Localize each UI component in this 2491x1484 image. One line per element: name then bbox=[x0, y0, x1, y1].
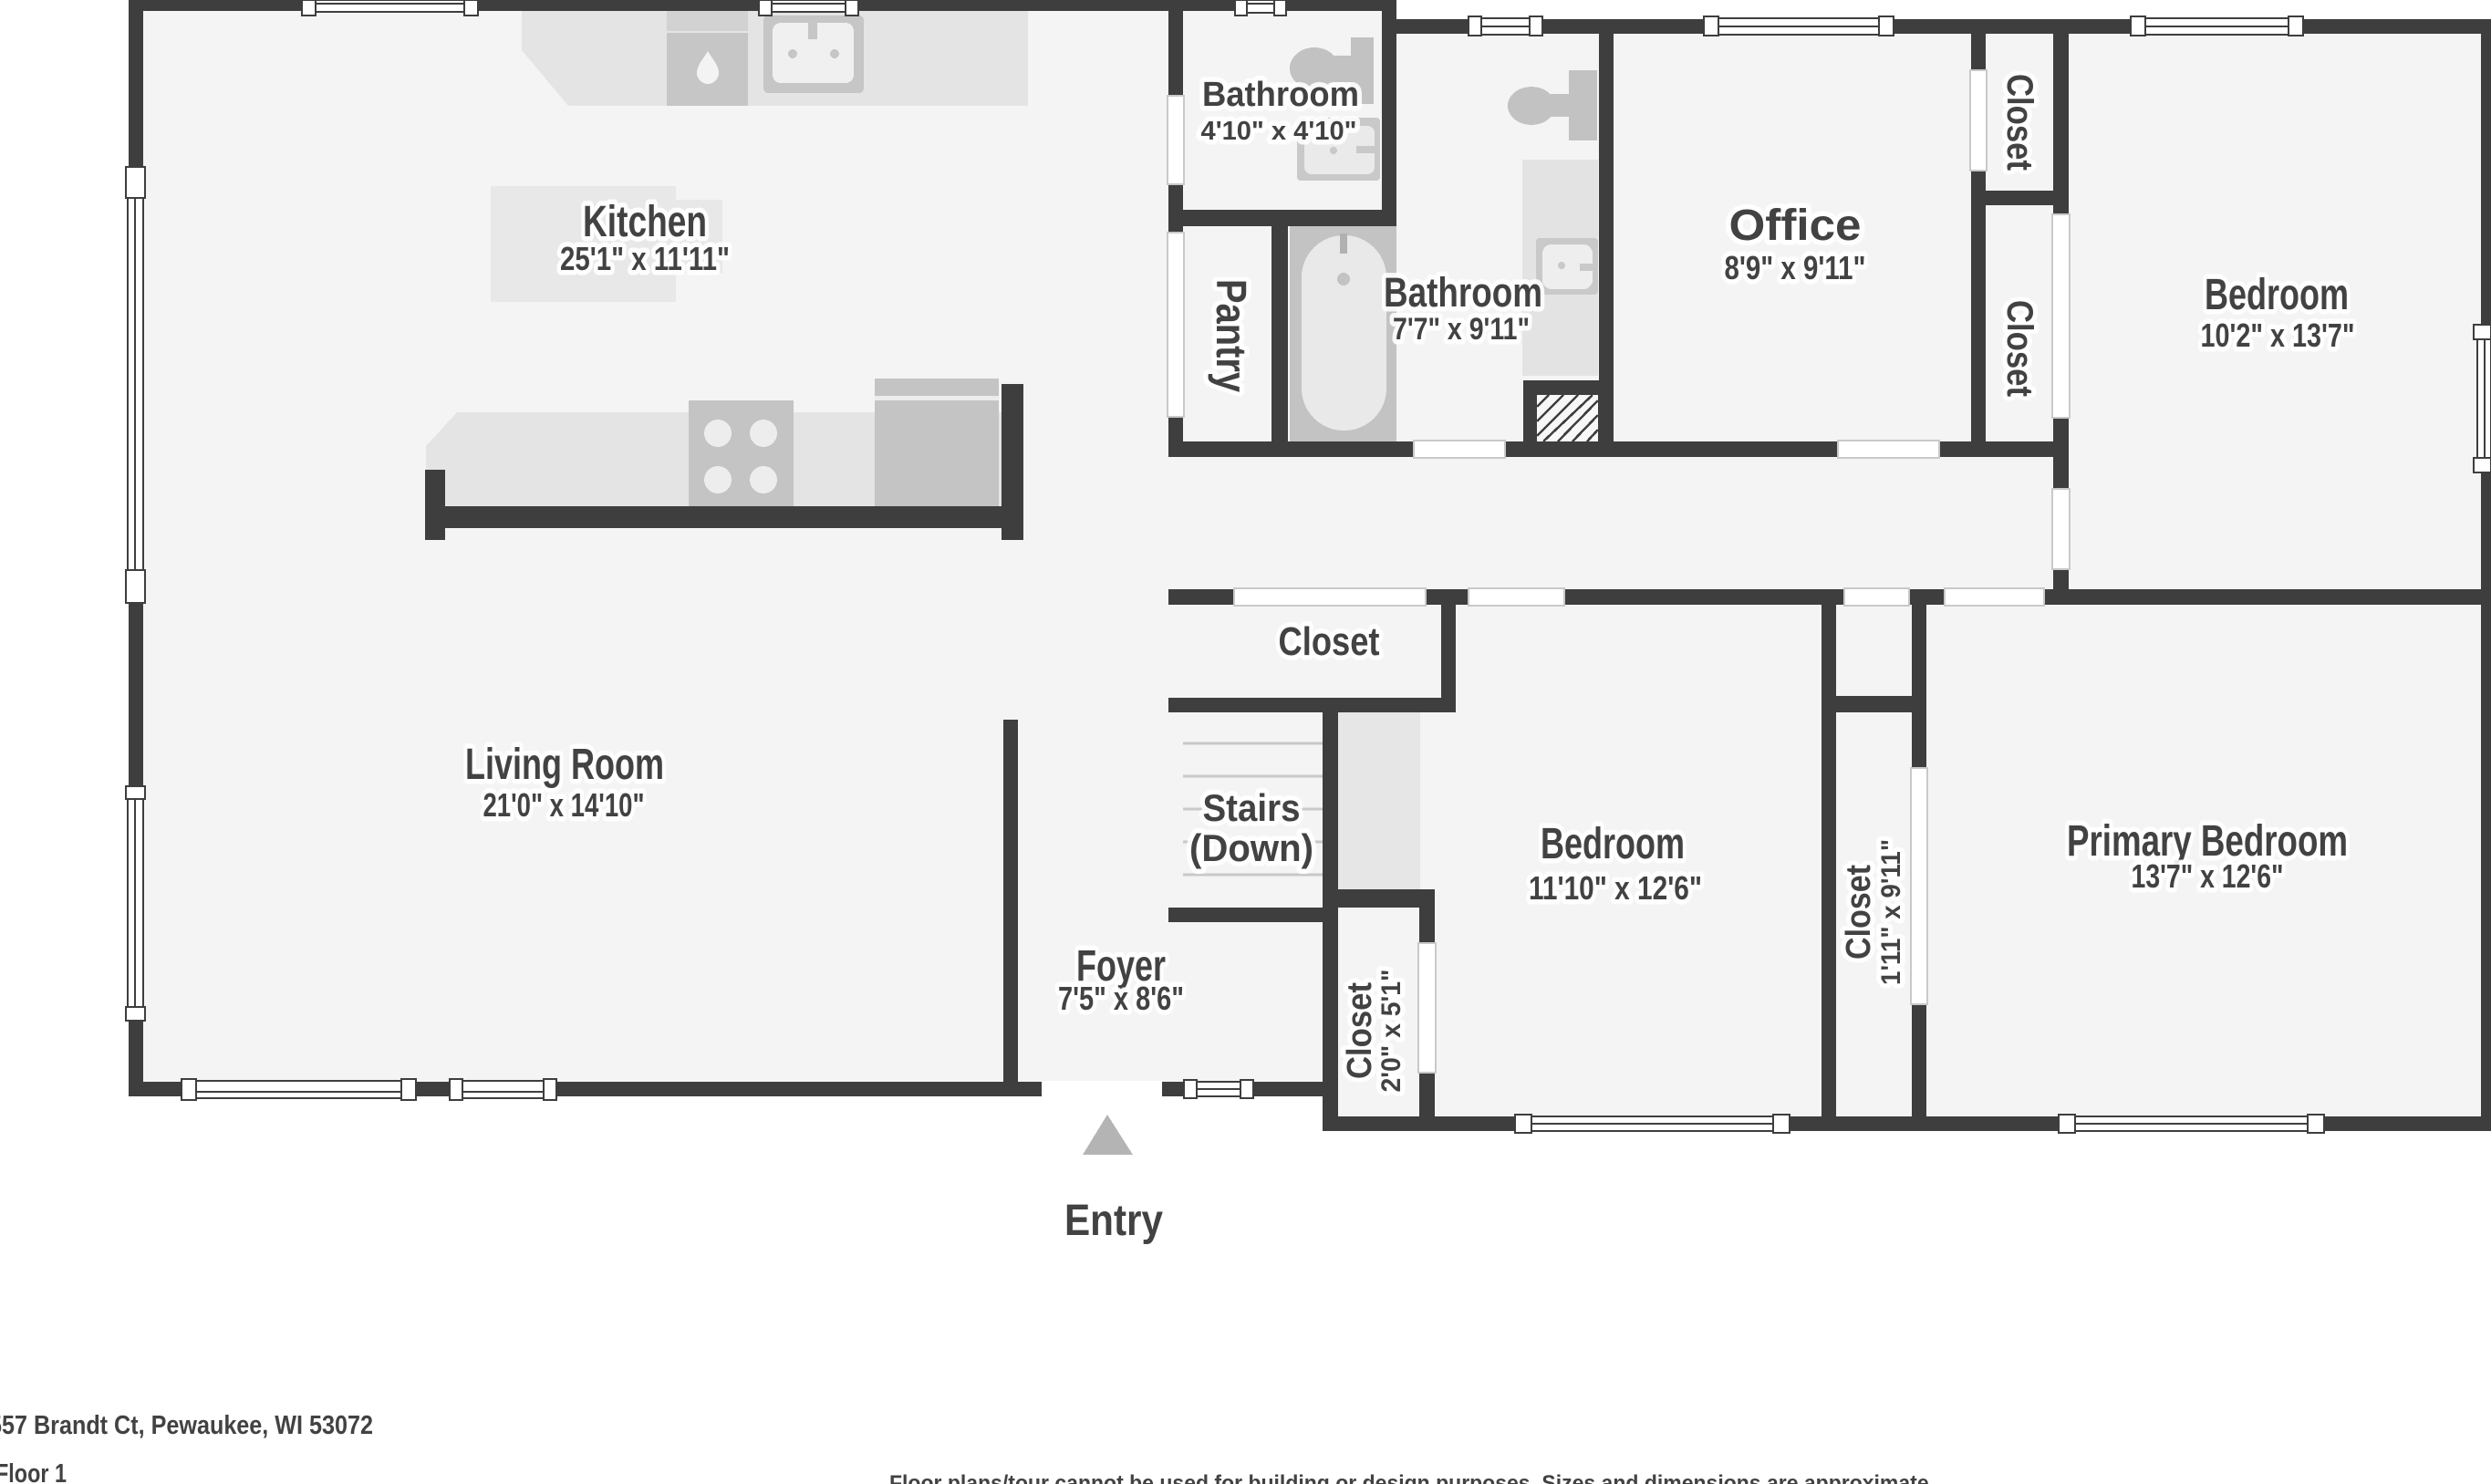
svg-text:Office: Office bbox=[1729, 202, 1862, 250]
svg-text:Closet: Closet bbox=[1341, 982, 1379, 1079]
svg-text:Closet: Closet bbox=[1840, 865, 1878, 960]
svg-text:Floor plans/tour cannot be use: Floor plans/tour cannot be used for buil… bbox=[889, 1471, 1935, 1484]
svg-text:Closet: Closet bbox=[1999, 300, 2040, 397]
svg-text:1'11" x 9'11": 1'11" x 9'11" bbox=[1876, 839, 1906, 985]
svg-text:Closet: Closet bbox=[1999, 74, 2040, 171]
svg-text:Bedroom: Bedroom bbox=[2205, 271, 2349, 319]
svg-text:8'9" x 9'11": 8'9" x 9'11" bbox=[1725, 249, 1866, 286]
svg-text:2'0" x 5'1": 2'0" x 5'1" bbox=[1376, 970, 1406, 1093]
svg-text:11'10" x 12'6": 11'10" x 12'6" bbox=[1529, 869, 1702, 907]
svg-text:Living Room: Living Room bbox=[465, 741, 664, 789]
svg-text:Bedroom: Bedroom bbox=[1541, 820, 1685, 868]
svg-text:21'0" x 14'10": 21'0" x 14'10" bbox=[483, 786, 645, 824]
svg-text:4'10" x 4'10": 4'10" x 4'10" bbox=[1201, 117, 1357, 146]
svg-text:25'1" x 11'11": 25'1" x 11'11" bbox=[560, 240, 730, 277]
svg-text:(Down): (Down) bbox=[1189, 826, 1313, 869]
svg-text:13'7" x 12'6": 13'7" x 12'6" bbox=[2132, 857, 2284, 895]
svg-text:Pantry: Pantry bbox=[1208, 279, 1255, 392]
svg-text:7'7" x 9'11": 7'7" x 9'11" bbox=[1393, 312, 1530, 347]
svg-text:Bathroom: Bathroom bbox=[1202, 76, 1359, 114]
svg-text:Entry: Entry bbox=[1064, 1197, 1163, 1245]
svg-text:7'5" x 8'6": 7'5" x 8'6" bbox=[1058, 980, 1184, 1017]
svg-text:Stairs: Stairs bbox=[1203, 786, 1301, 829]
svg-text:Bathroom: Bathroom bbox=[1384, 269, 1542, 316]
svg-text:Floor 1: Floor 1 bbox=[0, 1459, 67, 1484]
svg-text:10'2" x 13'7": 10'2" x 13'7" bbox=[2201, 317, 2355, 354]
svg-text:Closet: Closet bbox=[1279, 619, 1380, 664]
svg-text:557 Brandt Ct, Pewaukee, WI 53: 557 Brandt Ct, Pewaukee, WI 53072 bbox=[0, 1411, 373, 1440]
